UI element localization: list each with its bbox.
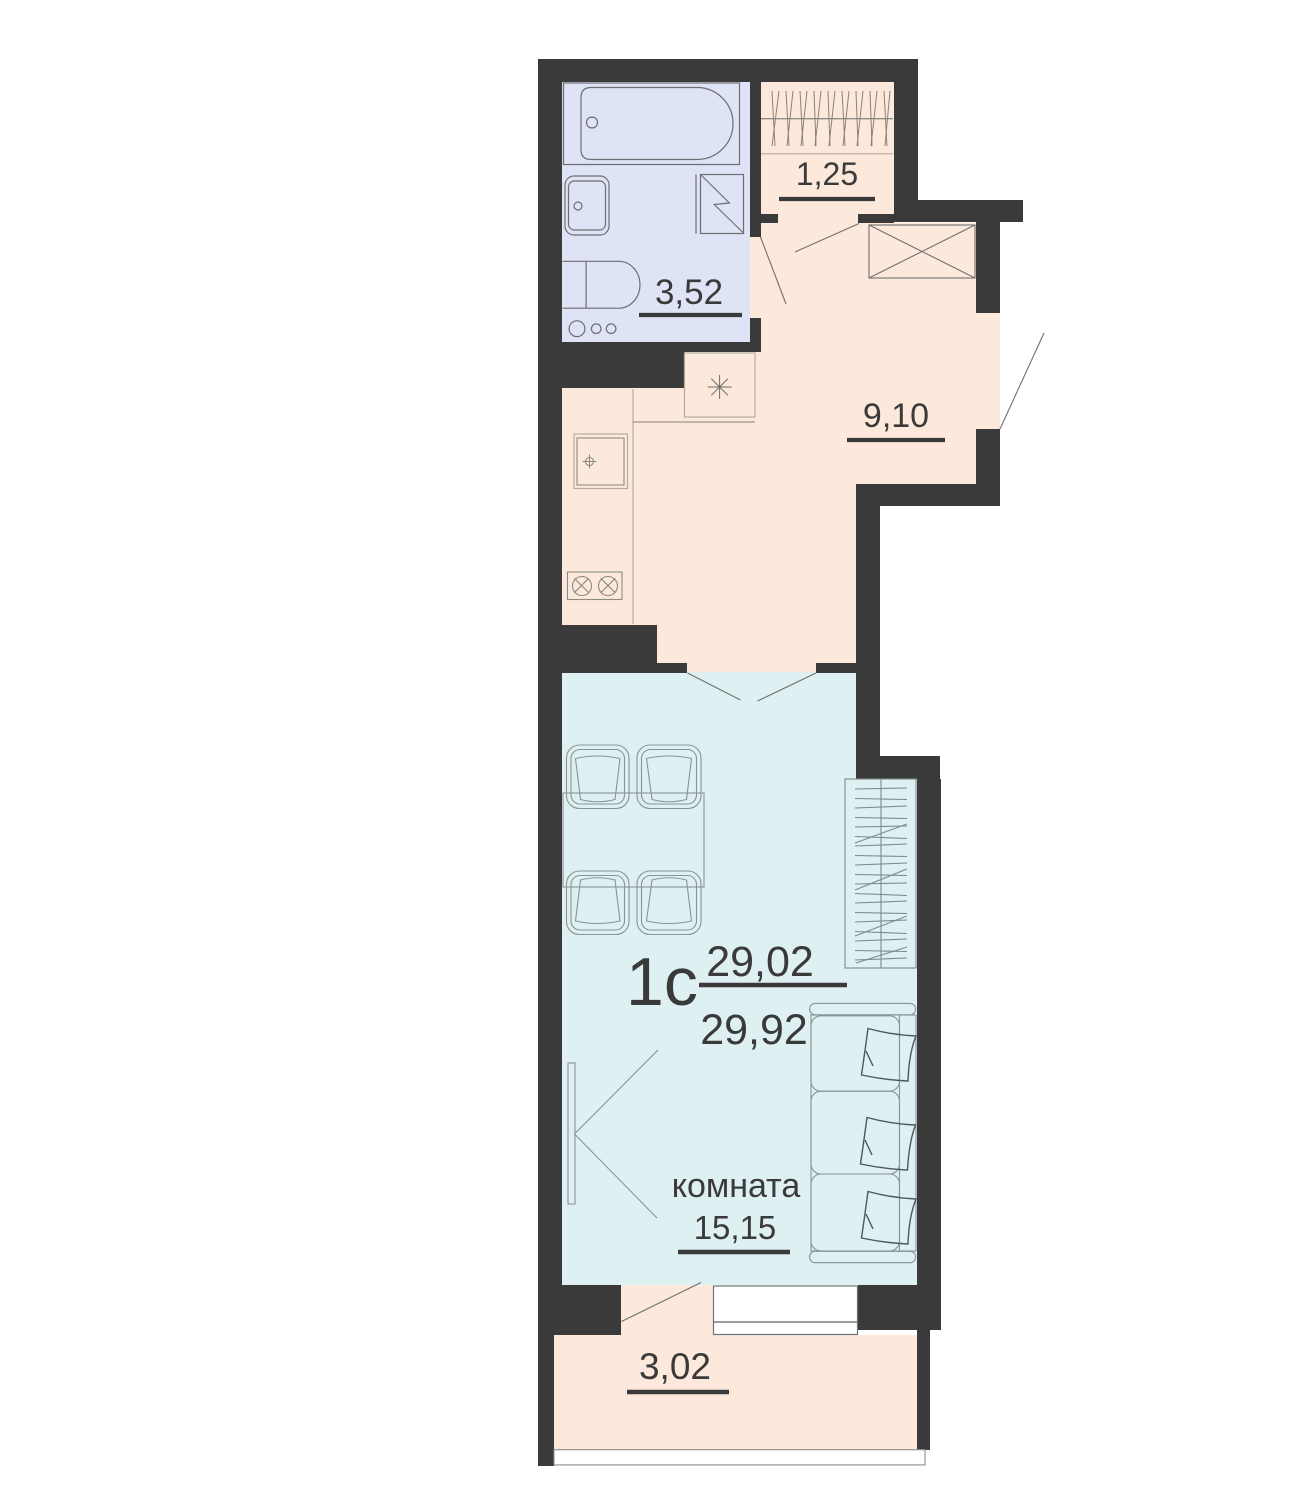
svg-text:1,25: 1,25	[796, 156, 858, 192]
svg-text:29,02: 29,02	[706, 938, 814, 986]
svg-text:29,92: 29,92	[700, 1006, 808, 1054]
svg-text:3,02: 3,02	[639, 1346, 711, 1387]
svg-text:комната: комната	[672, 1167, 801, 1205]
svg-text:3,52: 3,52	[655, 273, 723, 312]
svg-text:9,10: 9,10	[863, 397, 929, 435]
svg-text:1с: 1с	[626, 944, 698, 1020]
svg-text:15,15: 15,15	[694, 1209, 777, 1246]
